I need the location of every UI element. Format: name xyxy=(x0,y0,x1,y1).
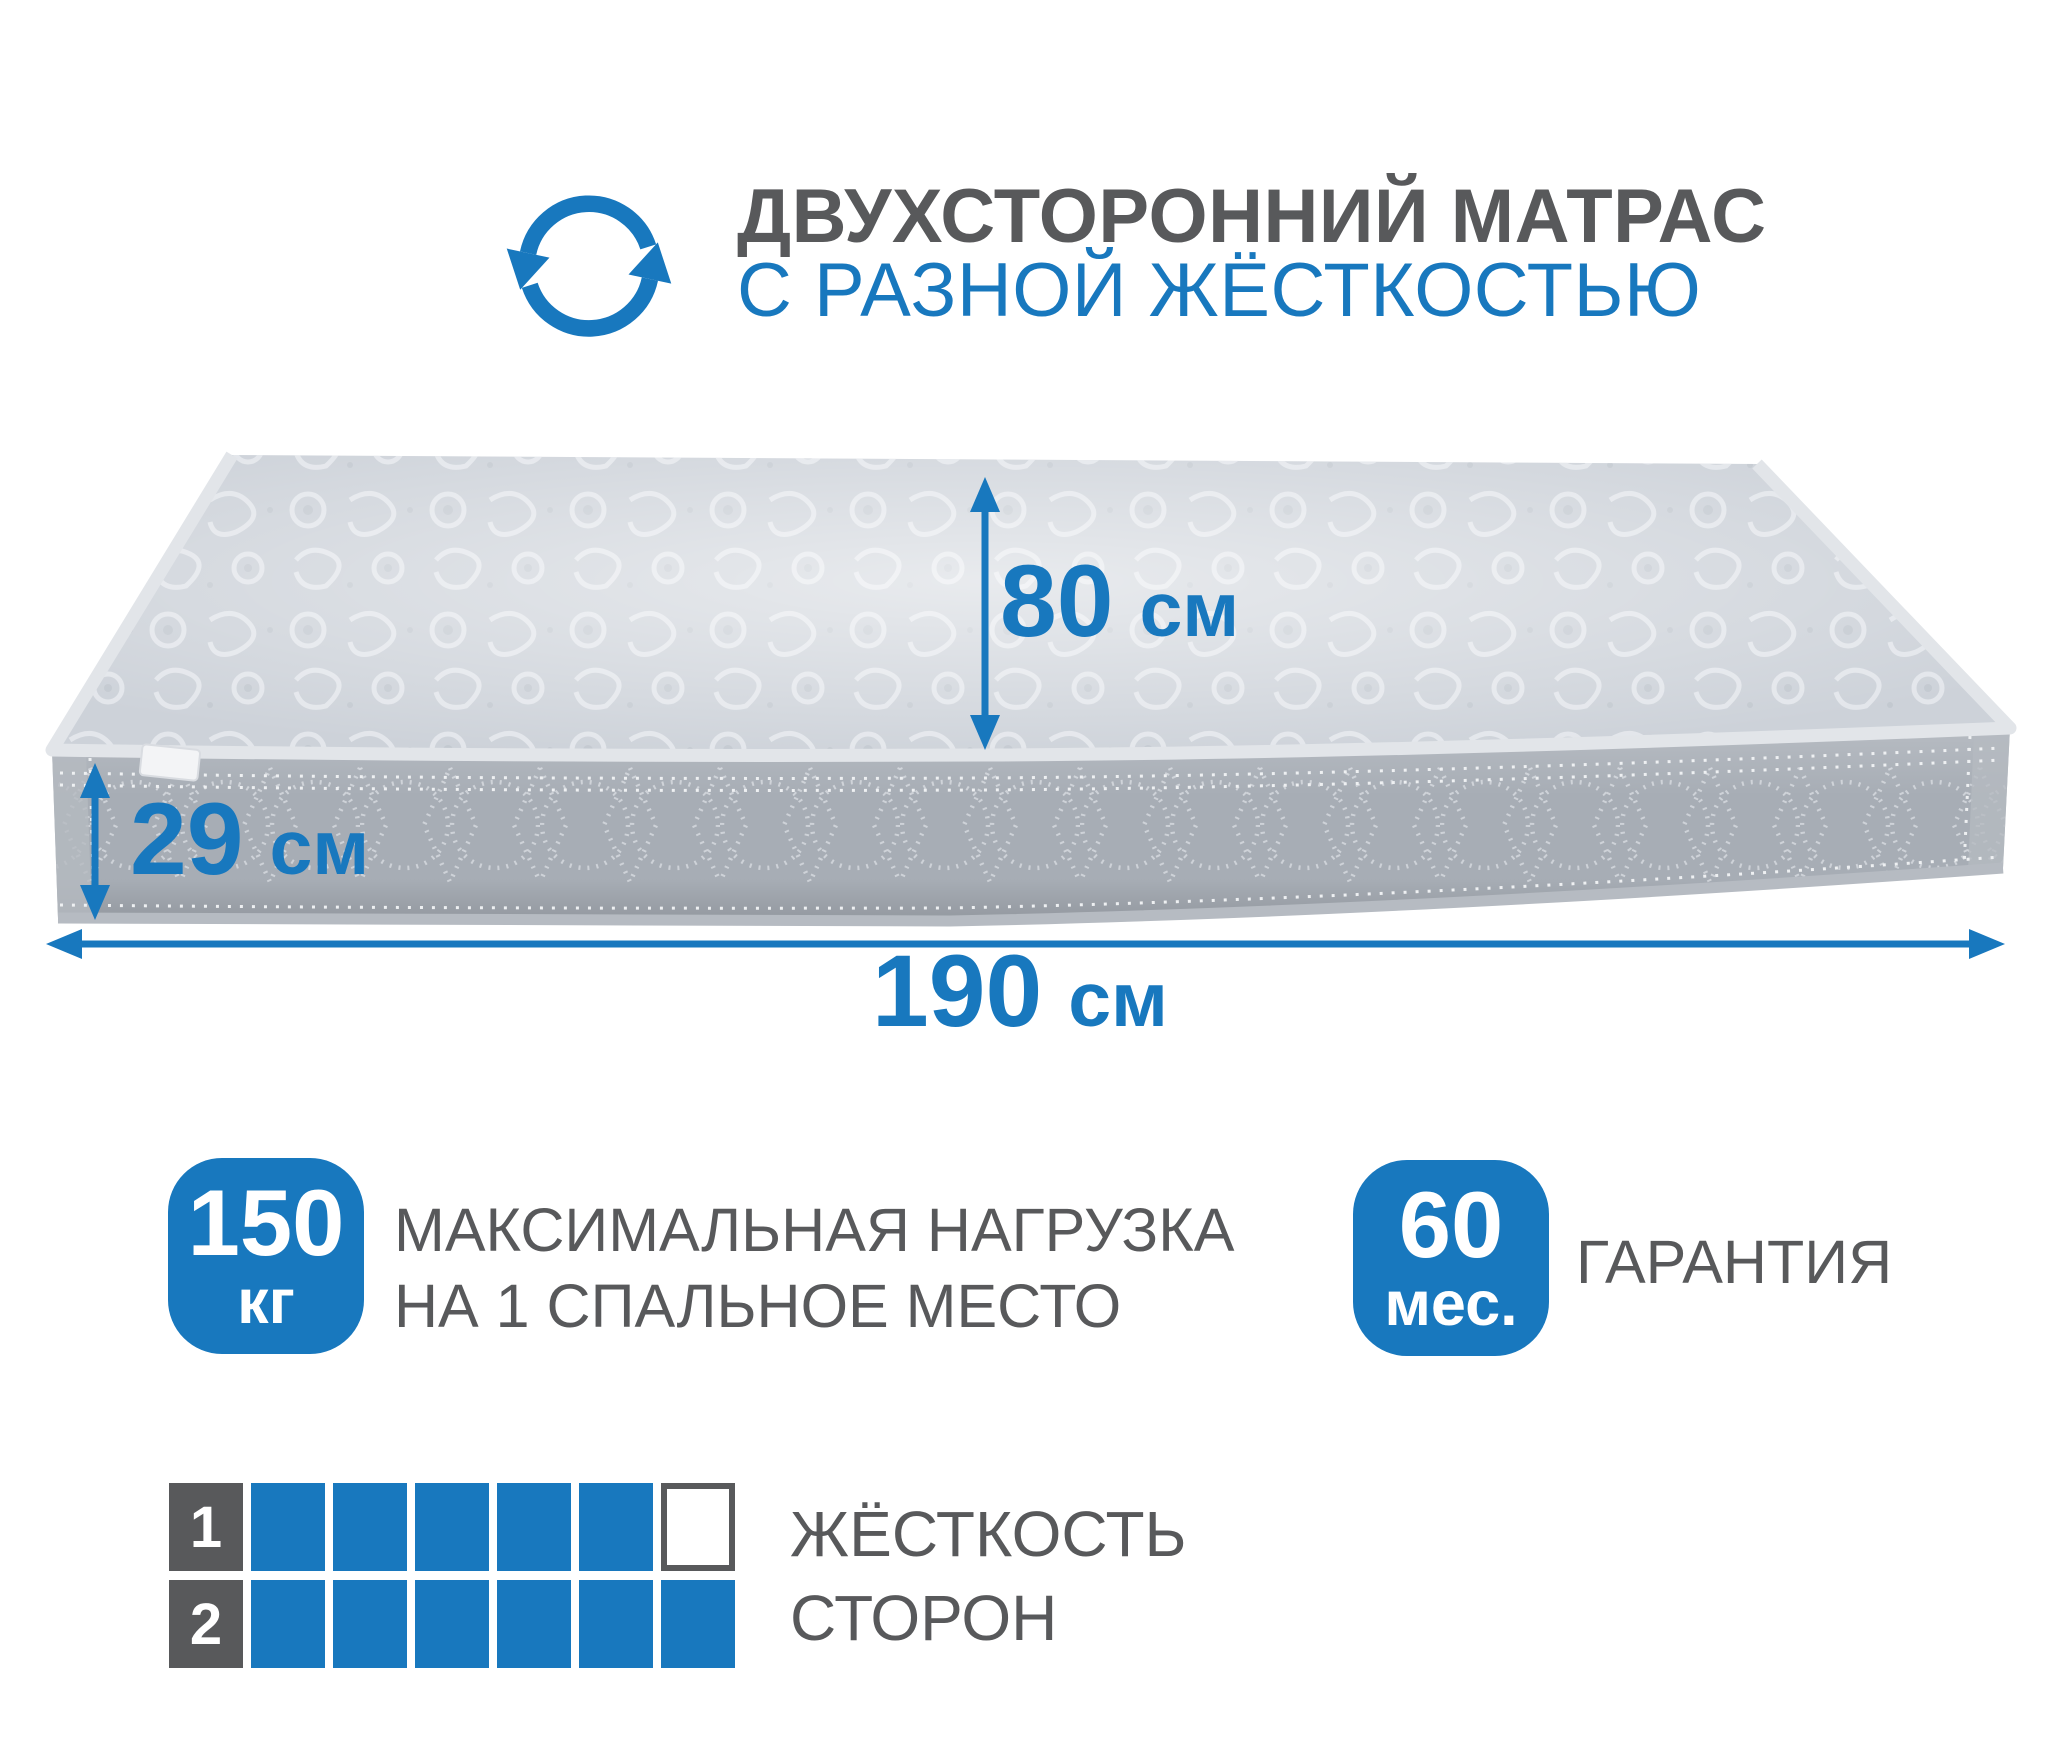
firmness-cell xyxy=(415,1483,489,1571)
warranty-value: 60 xyxy=(1399,1180,1504,1269)
firmness-row-side1: 1 xyxy=(169,1483,735,1571)
firmness-cell xyxy=(497,1483,571,1571)
dimension-length-unit: см xyxy=(1068,962,1168,1039)
warranty-unit: мес. xyxy=(1384,1273,1517,1336)
firmness-side2-number: 2 xyxy=(169,1580,243,1668)
mattress-infographic: ДВУХСТОРОННИЙ МАТРАС С РАЗНОЙ ЖЁСТКОСТЬЮ xyxy=(0,0,2048,1757)
dimension-label-height: 29 см xyxy=(130,788,369,890)
firmness-cell xyxy=(661,1483,735,1571)
dimension-label-width: 80 см xyxy=(1000,550,1239,652)
dimension-label-length: 190 см xyxy=(872,940,1168,1042)
firmness-cell xyxy=(661,1580,735,1668)
max-load-value: 150 xyxy=(188,1178,345,1267)
max-load-label-line2: НА 1 СПАЛЬНОЕ МЕСТО xyxy=(394,1268,1234,1344)
max-load-label: МАКСИМАЛЬНАЯ НАГРУЗКА НА 1 СПАЛЬНОЕ МЕСТ… xyxy=(394,1192,1234,1344)
max-load-badge: 150 кг xyxy=(168,1158,364,1354)
dimension-width-unit: см xyxy=(1139,572,1239,649)
dimension-height-unit: см xyxy=(269,810,369,887)
max-load-label-line1: МАКСИМАЛЬНАЯ НАГРУЗКА xyxy=(394,1192,1234,1268)
firmness-label-line1: ЖЁСТКОСТЬ xyxy=(790,1492,1187,1576)
warranty-badge: 60 мес. xyxy=(1353,1160,1549,1356)
warranty-label: ГАРАНТИЯ xyxy=(1576,1224,1892,1300)
dimension-height-value: 29 xyxy=(130,788,243,890)
dimension-width-value: 80 xyxy=(1000,550,1113,652)
dimension-length-value: 190 xyxy=(872,940,1042,1042)
firmness-cell xyxy=(415,1580,489,1668)
firmness-cell xyxy=(251,1483,325,1571)
firmness-cell xyxy=(251,1580,325,1668)
firmness-scale: 1 2 xyxy=(169,1483,735,1668)
firmness-label-line2: СТОРОН xyxy=(790,1576,1057,1660)
firmness-cell xyxy=(333,1483,407,1571)
firmness-cell xyxy=(579,1483,653,1571)
firmness-cell xyxy=(497,1580,571,1668)
firmness-cell xyxy=(579,1580,653,1668)
firmness-row-side2: 2 xyxy=(169,1580,735,1668)
mattress-tag xyxy=(139,744,200,781)
firmness-side1-number: 1 xyxy=(169,1483,243,1571)
max-load-unit: кг xyxy=(237,1271,295,1334)
firmness-cell xyxy=(333,1580,407,1668)
